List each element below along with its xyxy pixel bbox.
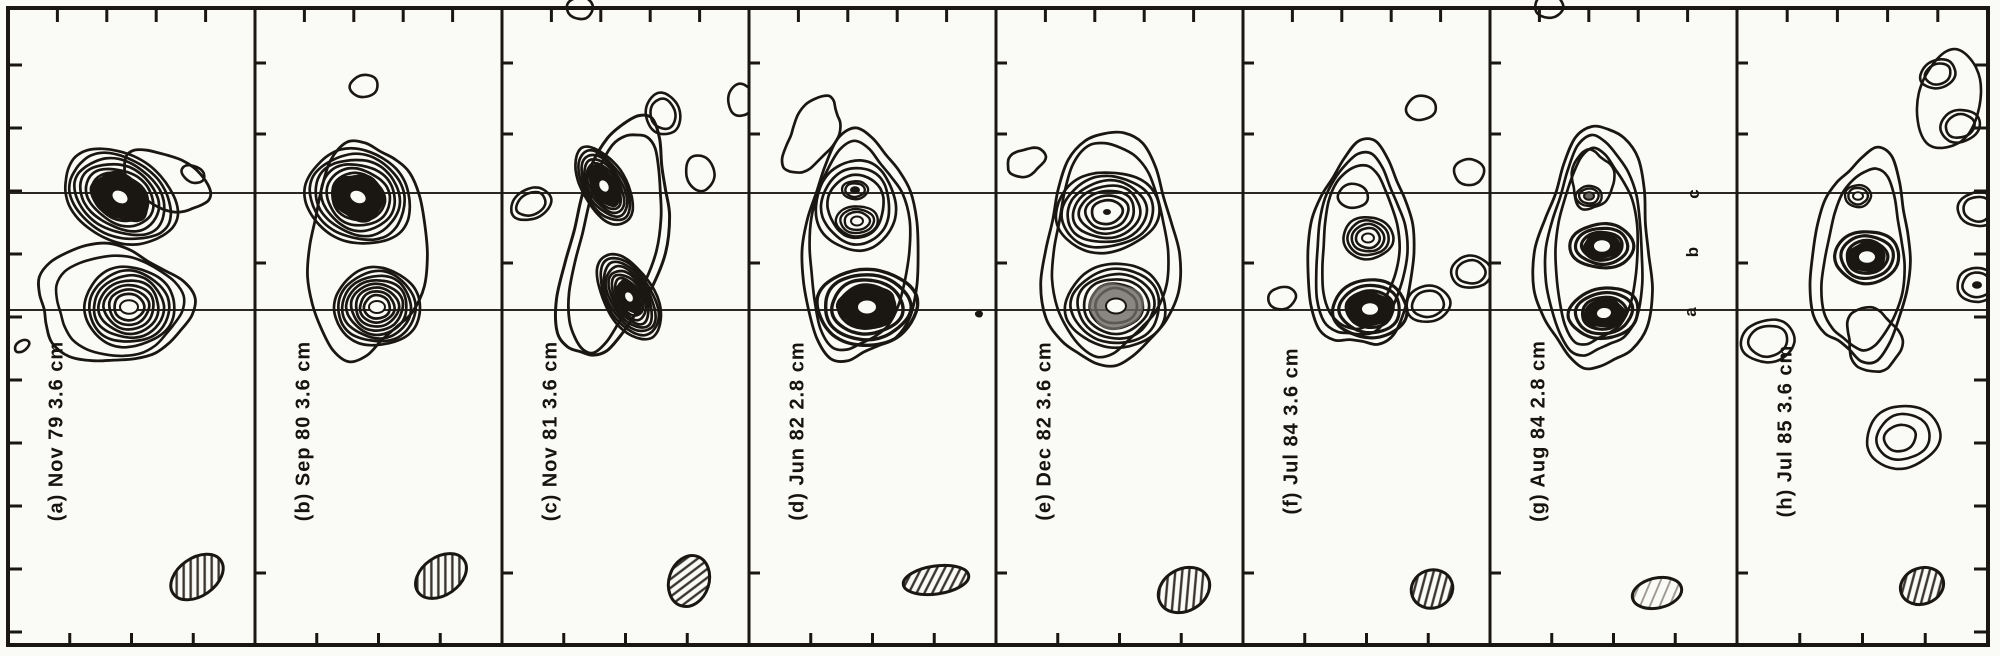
panel-label-c: (c) Nov 81 3.6 cm (540, 341, 563, 521)
panel-label-d: (d) Jun 82 2.8 cm (787, 341, 810, 520)
contour-figure (0, 0, 2000, 656)
panel-label-g: (g) Aug 84 2.8 cm (1528, 340, 1551, 522)
component-letter-a: a (1681, 307, 1701, 316)
panel-label-h: (h) Jul 85 3.6 cm (1775, 345, 1798, 518)
contour-figure-stage: (a) Nov 79 3.6 cm(b) Sep 80 3.6 cm(c) No… (0, 0, 2000, 656)
component-letter-c: c (1684, 189, 1704, 198)
panel-label-b: (b) Sep 80 3.6 cm (293, 341, 316, 521)
component-letter-b: b (1683, 247, 1703, 257)
panel-label-e: (e) Dec 82 3.6 cm (1034, 341, 1057, 520)
panel-label-f: (f) Jul 84 3.6 cm (1281, 347, 1304, 514)
panel-label-a: (a) Nov 79 3.6 cm (46, 341, 69, 521)
paper-background (0, 0, 2000, 656)
